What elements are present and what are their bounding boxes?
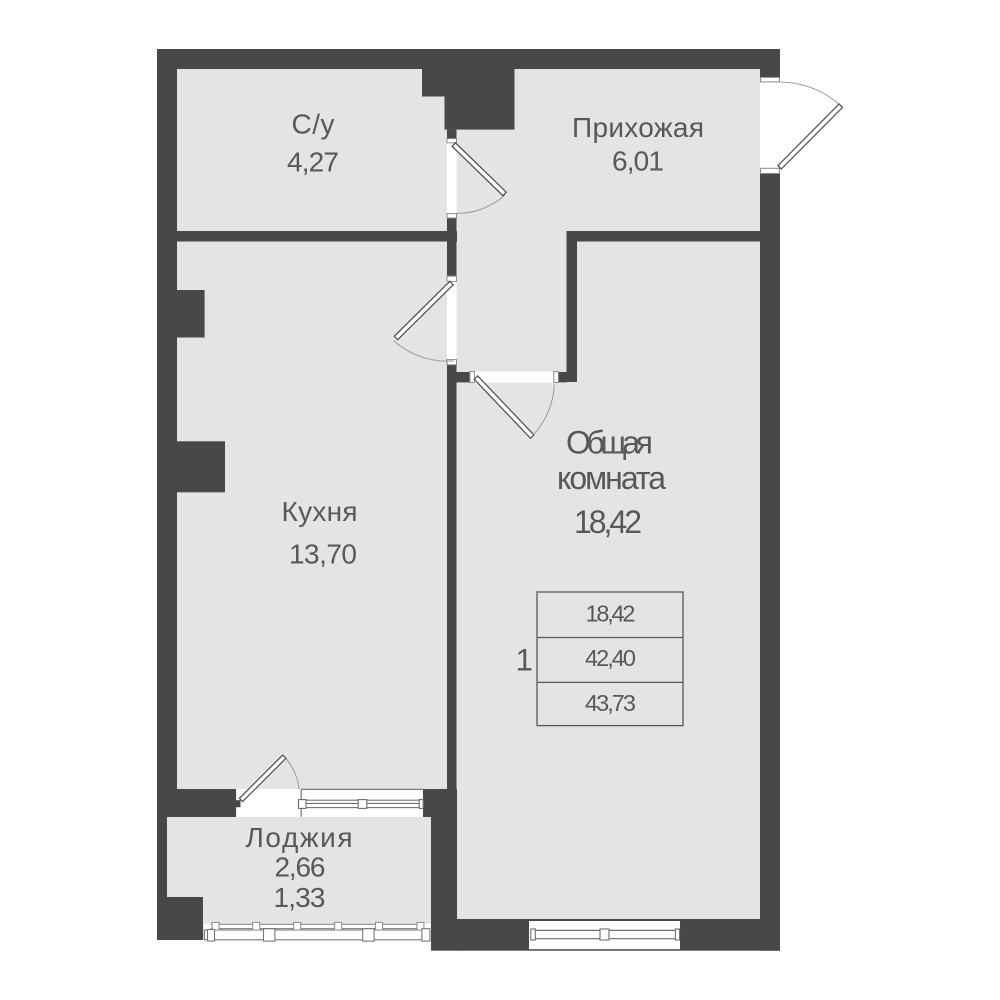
svg-text:18,42: 18,42: [574, 504, 642, 540]
svg-text:42,40: 42,40: [585, 645, 636, 671]
svg-text:4,27: 4,27: [287, 147, 339, 178]
svg-text:комната: комната: [557, 460, 666, 496]
svg-text:18,42: 18,42: [586, 600, 636, 626]
svg-text:2,66: 2,66: [275, 852, 326, 883]
svg-text:Кухня: Кухня: [282, 496, 358, 527]
svg-text:6,01: 6,01: [612, 146, 664, 177]
svg-text:1: 1: [515, 642, 533, 678]
svg-text:13,70: 13,70: [289, 539, 357, 570]
svg-text:Лоджия: Лоджия: [246, 822, 353, 853]
svg-text:1,33: 1,33: [274, 882, 326, 913]
svg-text:С/у: С/у: [292, 109, 335, 140]
svg-text:43,73: 43,73: [585, 690, 636, 716]
svg-text:Прихожая: Прихожая: [572, 112, 704, 143]
svg-text:Общая: Общая: [566, 425, 653, 461]
